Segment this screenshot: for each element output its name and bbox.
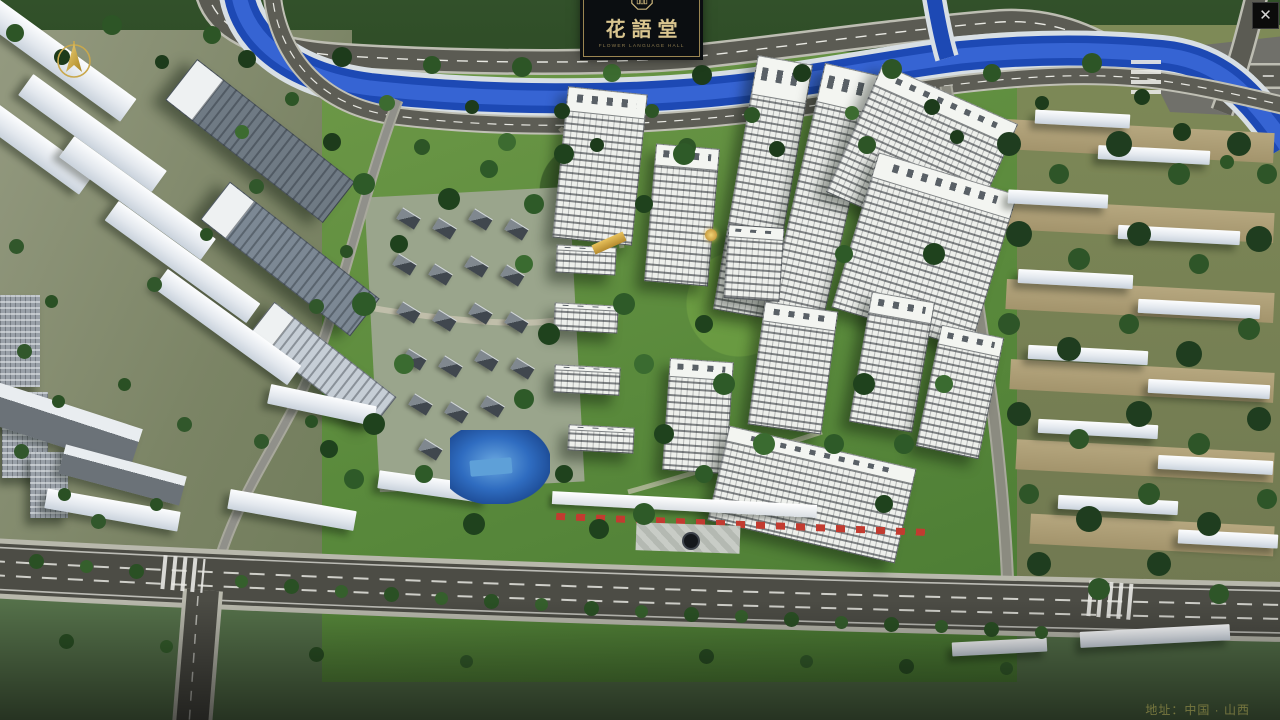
residential-tower <box>552 86 647 246</box>
project-logo-panel[interactable]: 花語堂 FLOWER LANGUAGE HALL <box>583 0 700 57</box>
close-button[interactable]: ✕ <box>1252 2 1279 29</box>
low-rise-flat <box>553 302 618 333</box>
residential-tower <box>644 143 720 286</box>
compass-icon <box>50 34 98 86</box>
project-logo-subtitle: FLOWER LANGUAGE HALL <box>599 43 685 48</box>
sales-presentation-window: ✕ o1 品牌 · 介绍BRAND SUPPORT o2 区位 · 价值LOCA… <box>0 0 1280 720</box>
gold-sculpture <box>705 229 717 241</box>
low-rise-flat <box>553 364 620 395</box>
aerial-map-viewport[interactable] <box>0 0 1280 720</box>
bottom-shade <box>0 600 1280 720</box>
entrance-gate <box>682 532 700 550</box>
project-logo-title: 花語堂 <box>606 13 684 42</box>
close-icon: ✕ <box>1259 7 1272 24</box>
tree-cluster-roadside <box>0 0 13 13</box>
low-rise-flat <box>567 424 634 453</box>
north-compass <box>50 34 98 86</box>
residential-tower <box>723 224 784 302</box>
address-text: 地址：中国 · 山西 <box>1145 701 1250 718</box>
gray-tower <box>0 295 40 387</box>
logo-seal-icon <box>630 0 654 11</box>
